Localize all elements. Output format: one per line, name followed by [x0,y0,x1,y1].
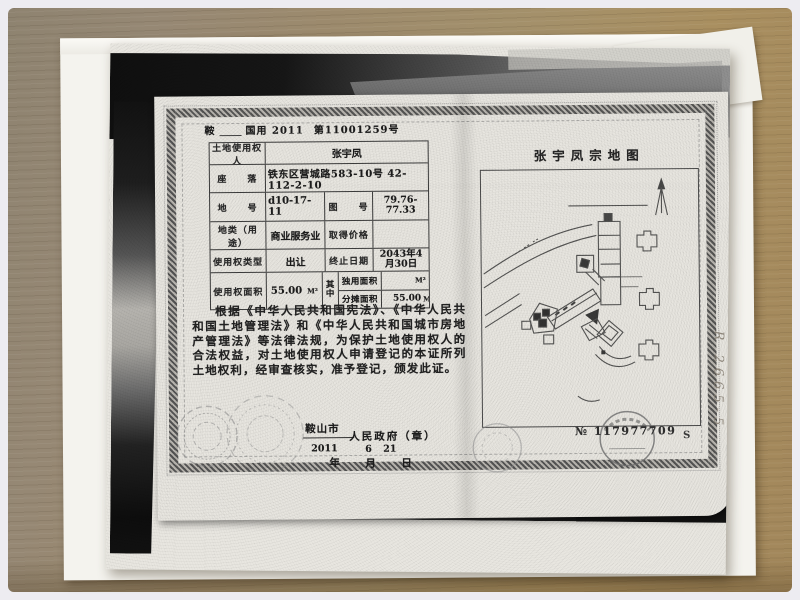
area-unit: M² [307,286,318,295]
parcel-map-drawing [481,169,700,427]
certificate-page: 鞍 国用 2011 第11001259号 土地使用权人 张宇凤 座 落 铁东区营… [154,92,730,521]
parcel-map-title: 张宇凤宗地图 [480,144,699,165]
location-label: 座 落 [210,165,265,192]
fill-in-underline [220,135,242,136]
serial-number-line: № 117977709 [575,424,676,438]
certificate-table: 土地使用权人 张宇凤 座 落 铁东区营城路583-10号 42-112-2-10… [209,140,430,310]
issue-month: 6 [365,444,372,455]
table-row-holder: 土地使用权人 张宇凤 [210,141,428,164]
document-number-series: 国用 2011 [245,121,303,137]
exclusive-area-label: 独用面积 [339,272,382,290]
certificate-left-page: 鞍 国用 2011 第11001259号 土地使用权人 张宇凤 座 落 铁东区营… [182,114,477,509]
scan-light-streak [508,46,730,70]
land-use-value: 商业服务业 [265,221,324,249]
table-row-landuse: 地类（用途） 商业服务业 取得价格 [210,219,428,249]
table-row-location: 座 落 铁东区营城路583-10号 42-112-2-10 [210,162,428,192]
issuer-government: 人民政府（章） [349,428,437,444]
plot-no-label: 地 号 [210,193,265,221]
serial-suffix: S [683,430,690,441]
serial-prefix: № [575,425,589,438]
right-type-label: 使用权类型 [211,250,266,272]
area-number: 55.00 [271,285,302,296]
location-value: 铁东区营城路583-10号 42-112-2-10 [265,163,428,191]
issuer-city: 鞍山市 [303,421,354,438]
handwritten-annotation: R 2665-5 [698,330,726,510]
serial-number: 117977709 [594,424,677,438]
photo-of-certificate-on-desk: 鞍 国用 2011 第11001259号 土地使用权人 张宇凤 座 落 铁东区营… [0,0,800,600]
table-row-plot: 地 号 d10-17-11 图 号 79.76-77.33 [210,190,428,221]
map-no-label: 图 号 [324,192,372,220]
document-number: 鞍 国用 2011 第11001259号 [204,120,468,137]
year-label: 年 [329,455,340,470]
issue-year: 2011 [311,443,338,454]
document-number-prefix: 鞍 [204,122,215,137]
month-label: 月 [365,456,376,471]
issue-day: 21 [383,444,396,455]
table-row-righttype: 使用权类型 出让 终止日期 2043年4月30日 [211,247,429,272]
document-number-serial: 第11001259号 [314,121,400,137]
photocopy-sheet: 鞍 国用 2011 第11001259号 土地使用权人 张宇凤 座 落 铁东区营… [106,43,731,574]
end-date-label: 终止日期 [325,249,373,271]
certificate-right-page: 张宇凤宗地图 [477,138,731,506]
legal-declaration-text: 根据《中华人民共和国宪法》、《中华人民共和国土地管理法》和《中华人民共和国城市房… [192,302,467,378]
holder-label: 土地使用权人 [210,143,265,164]
price-value [372,220,428,247]
day-label: 日 [401,455,412,470]
parcel-map [480,168,701,428]
issuer-block: 鞍山市 人民政府（章） 2011 6 21 年 月 日 [303,418,474,481]
plot-no-value: d10-17-11 [265,192,324,221]
price-label: 取得价格 [324,221,372,248]
right-type-value: 出让 [266,249,325,272]
map-no-value: 79.76-77.33 [372,191,428,219]
holder-value: 张宇凤 [265,141,428,163]
exclusive-area-unit: M² [415,276,426,285]
north-arrow-icon [655,177,667,215]
land-use-label: 地类（用途） [210,222,265,249]
official-stamps [453,390,730,500]
exclusive-area-row: 独用面积 M² [339,271,429,289]
end-date-value: 2043年4月30日 [373,248,429,270]
center-fold-shadow [450,94,480,518]
